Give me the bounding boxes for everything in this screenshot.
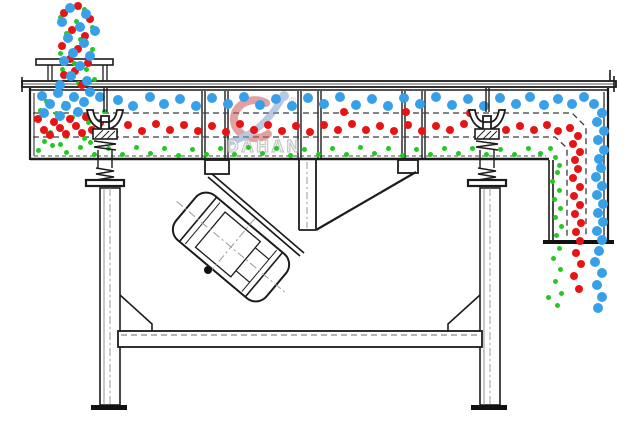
particle-dot-blue: [59, 56, 69, 66]
particle-dot-red: [577, 260, 585, 268]
particle-dot-red: [334, 126, 342, 134]
particle-dot-blue: [495, 93, 505, 103]
particle-dot-blue: [65, 3, 75, 13]
particle-dot-red: [340, 108, 348, 116]
particle-dot-blue: [479, 101, 489, 111]
particle-dot-blue: [319, 99, 329, 109]
particle-dot-green: [316, 152, 321, 157]
particle-dot-green: [553, 279, 558, 284]
particle-dot-blue: [63, 33, 73, 43]
particle-dot-green: [557, 163, 562, 168]
particle-dot-blue: [191, 101, 201, 111]
particle-dot-blue: [207, 93, 217, 103]
particle-dot-red: [446, 126, 454, 134]
particle-dot-blue: [592, 280, 602, 290]
particle-dot-red: [466, 109, 474, 117]
particle-dot-blue: [367, 94, 377, 104]
particle-dot-blue: [239, 92, 249, 102]
particle-dot-red: [58, 42, 66, 50]
particle-dot-blue: [159, 99, 169, 109]
particle-dot-green: [120, 152, 125, 157]
particle-dot-blue: [85, 87, 95, 97]
particle-dot-blue: [53, 88, 63, 98]
particle-dot-blue: [594, 246, 604, 256]
particle-dot-red: [576, 148, 584, 156]
particle-dot-green: [176, 153, 181, 158]
particle-dot-red: [124, 121, 132, 129]
particle-dot-red: [278, 127, 286, 135]
particle-dot-green: [260, 151, 265, 156]
particle-dot-blue: [539, 100, 549, 110]
particle-dot-red: [194, 127, 202, 135]
particle-dot-red: [577, 219, 585, 227]
particle-dot-red: [320, 121, 328, 129]
particle-dot-blue: [593, 135, 603, 145]
particle-dot-red: [570, 272, 578, 280]
particle-dot-green: [553, 155, 558, 160]
diagram-stage: DAHAN ®: [0, 0, 638, 428]
particle-dot-green: [78, 145, 83, 150]
particle-dot-red: [570, 192, 578, 200]
particle-dot-red: [96, 119, 104, 127]
particle-dot-red: [566, 124, 574, 132]
particle-dot-red: [46, 131, 54, 139]
particle-dot-blue: [90, 26, 100, 36]
particle-dot-green: [102, 109, 107, 114]
particle-dot-blue: [598, 217, 608, 227]
particle-dot-green: [552, 197, 557, 202]
particle-dot-red: [82, 113, 90, 121]
particle-dot-red: [432, 122, 440, 130]
particle-dot-blue: [597, 235, 607, 245]
particle-dot-blue: [85, 51, 95, 61]
particle-dot-green: [551, 256, 556, 261]
particle-dot-green: [414, 147, 419, 152]
particle-dot-red: [222, 128, 230, 136]
particle-dot-blue: [431, 92, 441, 102]
particle-dot-green: [58, 51, 63, 56]
particle-dot-blue: [69, 92, 79, 102]
particle-dot-green: [553, 215, 558, 220]
particle-dot-green: [344, 152, 349, 157]
particle-dot-blue: [447, 100, 457, 110]
particle-dot-red: [306, 128, 314, 136]
particle-dot-green: [386, 146, 391, 151]
particle-dot-green: [148, 151, 153, 156]
particle-dot-red: [516, 122, 524, 130]
particle-dot-green: [559, 224, 564, 229]
particle-dot-blue: [579, 92, 589, 102]
particle-dot-red: [404, 121, 412, 129]
particle-dot-blue: [68, 48, 78, 58]
particle-dot-green: [330, 146, 335, 151]
particle-dot-blue: [223, 99, 233, 109]
particle-dot-green: [428, 152, 433, 157]
particle-dot-blue: [113, 95, 123, 105]
particle-dot-blue: [95, 92, 105, 102]
particle-dot-green: [36, 148, 41, 153]
particle-dot-green: [204, 152, 209, 157]
particle-dot-red: [138, 127, 146, 135]
particle-dot-blue: [175, 94, 185, 104]
particle-dot-blue: [597, 292, 607, 302]
particle-dot-blue: [553, 94, 563, 104]
particle-dot-blue: [75, 22, 85, 32]
particle-dot-red: [543, 121, 551, 129]
particle-dot-red: [574, 132, 582, 140]
particle-dot-blue: [57, 17, 67, 27]
particle-dot-blue: [511, 99, 521, 109]
particle-dot-blue: [271, 94, 281, 104]
particle-dot-green: [274, 146, 279, 151]
particle-dot-green: [302, 147, 307, 152]
particle-dot-red: [78, 129, 86, 137]
particle-dot-green: [232, 152, 237, 157]
particle-dot-red: [569, 174, 577, 182]
particle-dot-green: [470, 146, 475, 151]
particle-dot-red: [569, 140, 577, 148]
particle-dot-red: [208, 122, 216, 130]
particle-dot-blue: [383, 101, 393, 111]
particle-dot-red: [110, 128, 118, 136]
particle-dot-green: [484, 152, 489, 157]
particle-dot-green: [546, 295, 551, 300]
particle-dot-blue: [303, 93, 313, 103]
particle-dot-red: [166, 126, 174, 134]
particle-dot-green: [555, 303, 560, 308]
particle-dot-red: [576, 201, 584, 209]
particle-dot-blue: [75, 61, 85, 71]
particle-dot-blue: [79, 38, 89, 48]
particle-dot-blue: [590, 257, 600, 267]
particle-dot-red: [571, 210, 579, 218]
particle-dot-blue: [399, 93, 409, 103]
particle-dot-green: [190, 147, 195, 152]
particle-dot-red: [74, 2, 82, 10]
particle-dot-blue: [567, 99, 577, 109]
particle-dot-blue: [66, 71, 76, 81]
particle-dot-blue: [287, 101, 297, 111]
particle-dot-red: [62, 130, 70, 138]
particle-dot-green: [92, 152, 97, 157]
particle-dot-green: [134, 145, 139, 150]
particle-dot-green: [162, 146, 167, 151]
particle-dot-green: [246, 145, 251, 150]
particle-dot-red: [575, 285, 583, 293]
particle-dot-green: [358, 145, 363, 150]
particle-dot-red: [572, 249, 580, 257]
particle-dot-blue: [525, 92, 535, 102]
particle-dot-blue: [128, 101, 138, 111]
particle-dot-green: [400, 153, 405, 158]
particle-dot-green: [64, 150, 69, 155]
particle-dot-blue: [592, 117, 602, 127]
particle-dot-blue: [255, 100, 265, 110]
particle-dot-red: [574, 165, 582, 173]
particle-dot-green: [442, 146, 447, 151]
particle-dot-blue: [415, 99, 425, 109]
particle-dot-red: [402, 108, 410, 116]
particle-dot-red: [576, 237, 584, 245]
particle-dot-blue: [55, 111, 65, 121]
particle-dot-green: [372, 151, 377, 156]
particle-dot-blue: [593, 303, 603, 313]
particle-dot-red: [292, 122, 300, 130]
particle-dot-green: [558, 206, 563, 211]
particle-dot-green: [218, 146, 223, 151]
particle-dot-green: [550, 179, 555, 184]
particle-dot-red: [264, 121, 272, 129]
particle-dot-blue: [351, 100, 361, 110]
particle-dot-green: [92, 77, 97, 82]
particle-dot-red: [362, 126, 370, 134]
particle-dot-green: [42, 139, 47, 144]
particle-dot-red: [576, 183, 584, 191]
particle-dot-green: [498, 147, 503, 152]
particle-dot-green: [58, 142, 63, 147]
particle-dot-red: [502, 126, 510, 134]
particle-dot-red: [530, 126, 538, 134]
particle-dot-blue: [599, 126, 609, 136]
particle-dot-red: [572, 228, 580, 236]
particle-dot-green: [555, 170, 560, 175]
particle-dot-red: [152, 120, 160, 128]
particle-dot-green: [538, 151, 543, 156]
particle-dot-red: [236, 120, 244, 128]
particle-dot-blue: [45, 99, 55, 109]
particle-dot-red: [376, 122, 384, 130]
particle-dot-red: [180, 121, 188, 129]
particle-dot-red: [554, 127, 562, 135]
particle-dot-blue: [463, 94, 473, 104]
particle-dot-red: [88, 126, 96, 134]
particle-dot-green: [554, 233, 559, 238]
particle-dot-blue: [73, 107, 83, 117]
particle-dot-blue: [82, 76, 92, 86]
particle-dot-red: [348, 120, 356, 128]
particle-dot-blue: [335, 92, 345, 102]
particle-dot-green: [548, 146, 553, 151]
particle-dot-blue: [597, 268, 607, 278]
particle-dot-red: [571, 156, 579, 164]
particle-dot-green: [559, 291, 564, 296]
particle-dot-blue: [61, 101, 71, 111]
particle-dot-blue: [39, 108, 49, 118]
particle-dot-green: [557, 188, 562, 193]
particle-dot-blue: [81, 9, 91, 19]
particle-dot-green: [50, 143, 55, 148]
particle-dot-green: [88, 140, 93, 145]
particle-dot-green: [512, 152, 517, 157]
particle-dot-red: [250, 126, 258, 134]
particle-dot-blue: [79, 97, 89, 107]
particle-dot-green: [288, 153, 293, 158]
particle-dot-green: [526, 146, 531, 151]
particle-dot-green: [557, 246, 562, 251]
particle-dot-blue: [145, 92, 155, 102]
particles-layer: [0, 0, 638, 428]
particle-dot-red: [390, 127, 398, 135]
particle-dot-green: [558, 267, 563, 272]
particle-dot-red: [418, 127, 426, 135]
particle-dot-red: [460, 120, 468, 128]
particle-dot-green: [456, 151, 461, 156]
particle-dot-green: [106, 146, 111, 151]
particle-dot-blue: [589, 99, 599, 109]
